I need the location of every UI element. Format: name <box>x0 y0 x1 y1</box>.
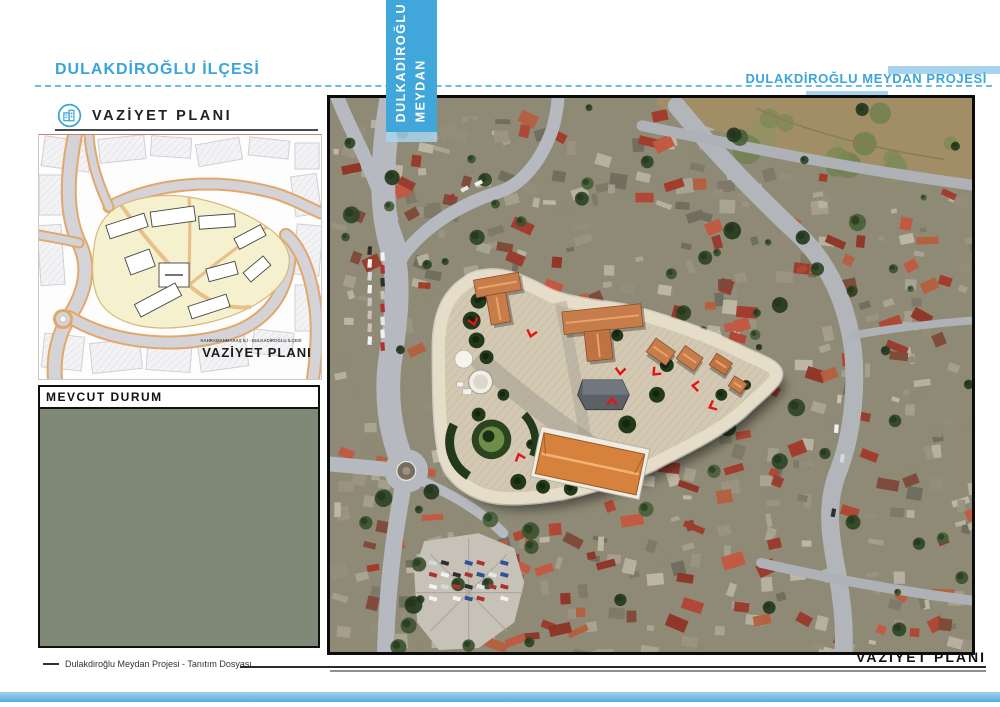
main-aerial-panel <box>327 95 975 655</box>
footer-dash <box>43 663 59 665</box>
section-title: VAZİYET PLANI <box>92 108 232 124</box>
roundabout <box>384 449 428 493</box>
footer-caption: Dulakdiroğlu Meydan Projesi - Tanıtım Do… <box>43 659 252 669</box>
map-caption-small: KAHRAMANMARAŞ İLİ - DULKADİROĞLU İLÇESİ <box>201 338 302 343</box>
existing-situation-aerial <box>40 409 318 648</box>
banner-label: DULKADİROĞLU MEYDAN <box>392 0 431 132</box>
vertical-banner: DULKADİROĞLU MEYDAN <box>386 0 437 132</box>
bottom-accent-bar <box>0 692 1000 702</box>
banner-tail <box>386 132 437 142</box>
existing-situation-panel: MEVCUT DURUM <box>38 385 320 648</box>
building-icon <box>57 103 82 128</box>
presentation-page: DULAKDİROĞLU İLÇESİ DULAKDİROĞLU MEYDAN … <box>0 0 1000 707</box>
map-caption-large: VAZİYET PLANI <box>202 345 312 360</box>
footer-rule <box>240 666 986 668</box>
section-underline <box>55 129 318 131</box>
main-aerial-image <box>330 98 972 652</box>
footer-rule-gray <box>330 670 986 672</box>
page-title-right: DULAKDİROĞLU MEYDAN PROJESİ <box>745 71 987 86</box>
page-title-left: DULAKDİROĞLU İLÇESİ <box>55 61 260 79</box>
site-plan-drawing-panel: KAHRAMANMARAŞ İLİ - DULKADİROĞLU İLÇESİ … <box>38 134 322 380</box>
site-plan-drawing: KAHRAMANMARAŞ İLİ - DULKADİROĞLU İLÇESİ … <box>39 135 321 379</box>
existing-situation-title: MEVCUT DURUM <box>40 387 318 409</box>
footer-caption-text: Dulakdiroğlu Meydan Projesi - Tanıtım Do… <box>65 659 252 669</box>
section-header: VAZİYET PLANI <box>57 103 232 128</box>
